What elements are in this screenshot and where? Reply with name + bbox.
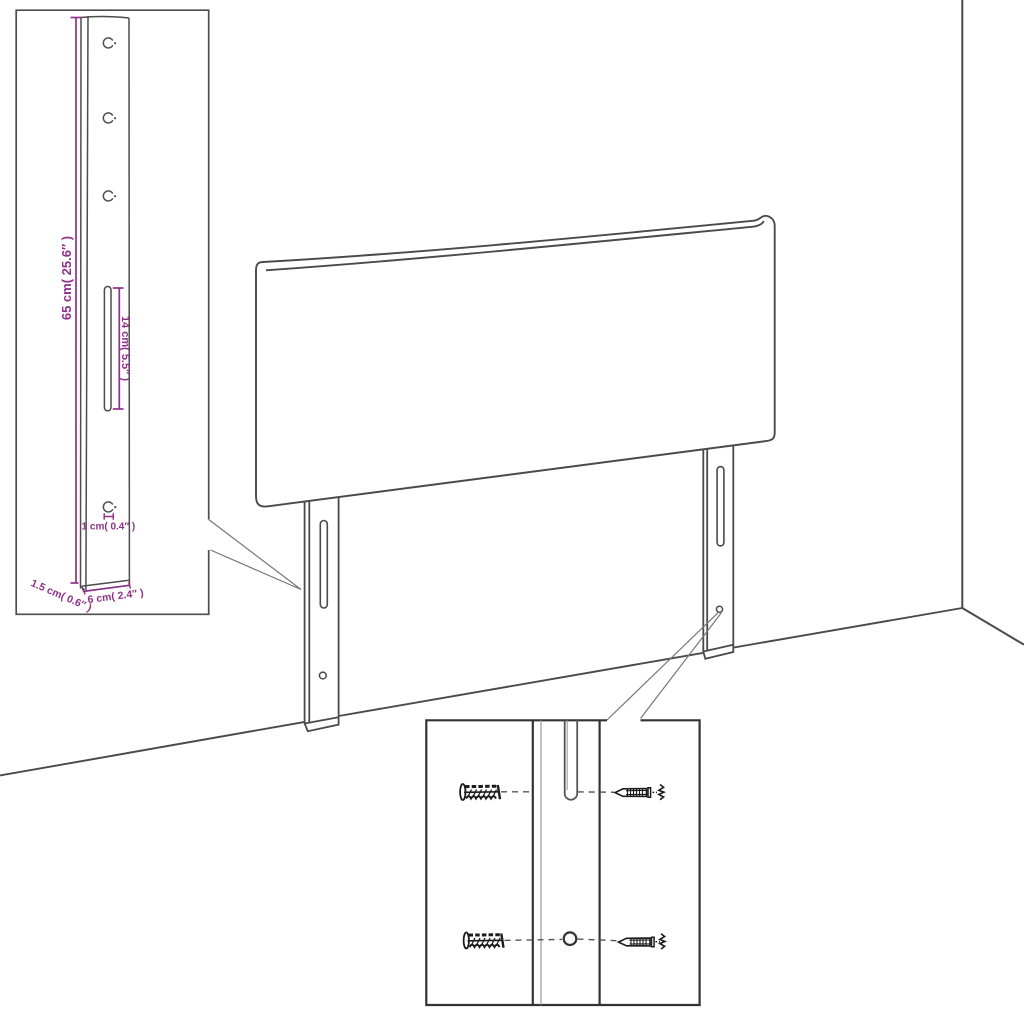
svg-text:1.5 cm( 0.6″ ): 1.5 cm( 0.6″ ) <box>29 577 94 614</box>
svg-text:65 cm( 25.6″ ): 65 cm( 25.6″ ) <box>59 236 74 320</box>
svg-text:1 cm( 0.4″ ): 1 cm( 0.4″ ) <box>82 521 136 532</box>
svg-text:14 cm( 5.5″ ): 14 cm( 5.5″ ) <box>119 316 131 382</box>
